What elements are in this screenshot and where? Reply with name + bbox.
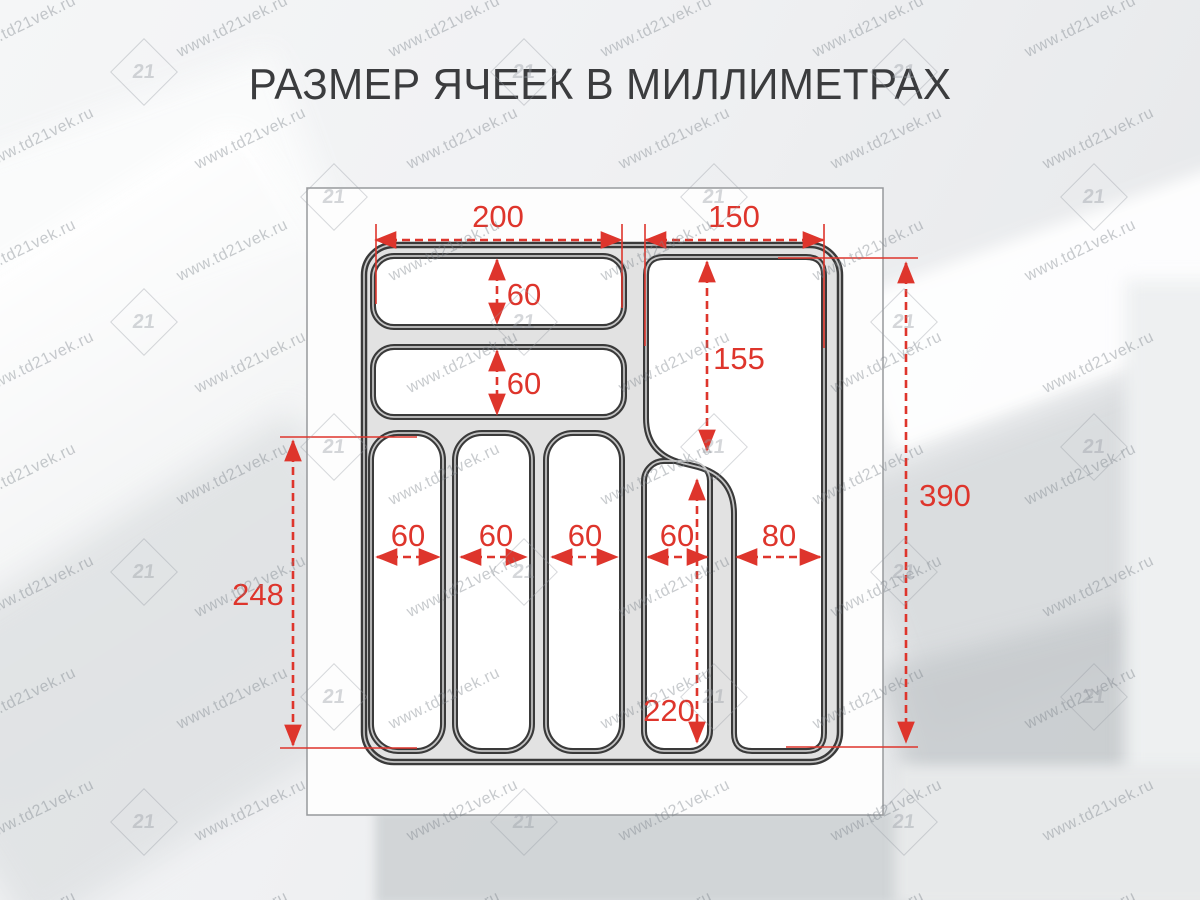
infographic-canvas: РАЗМЕР ЯЧЕЕК В МИЛЛИМЕТРАХ <box>0 0 1200 900</box>
dim-label-60-vertical-slot-3: 60 <box>568 518 602 553</box>
dim-label-220: 220 <box>643 693 695 728</box>
dim-label-150: 150 <box>708 199 760 234</box>
dim-label-248: 248 <box>232 577 284 612</box>
dim-label-390: 390 <box>919 478 971 513</box>
dim-label-80: 80 <box>762 518 796 553</box>
dim-label-200: 200 <box>472 199 524 234</box>
cutlery-tray-diagram: 200 150 60 60 155 248 60 60 60 60 80 220… <box>0 0 1200 900</box>
dim-label-60-narrow-slot: 60 <box>660 518 694 553</box>
dim-label-60-vertical-slot-2: 60 <box>479 518 513 553</box>
dim-label-60-top-slot-1: 60 <box>507 277 541 312</box>
page-title: РАЗМЕР ЯЧЕЕК В МИЛЛИМЕТРАХ <box>24 60 1176 110</box>
dim-label-155: 155 <box>713 341 765 376</box>
dim-label-60-top-slot-2: 60 <box>507 366 541 401</box>
dim-label-60-vertical-slot-1: 60 <box>391 518 425 553</box>
